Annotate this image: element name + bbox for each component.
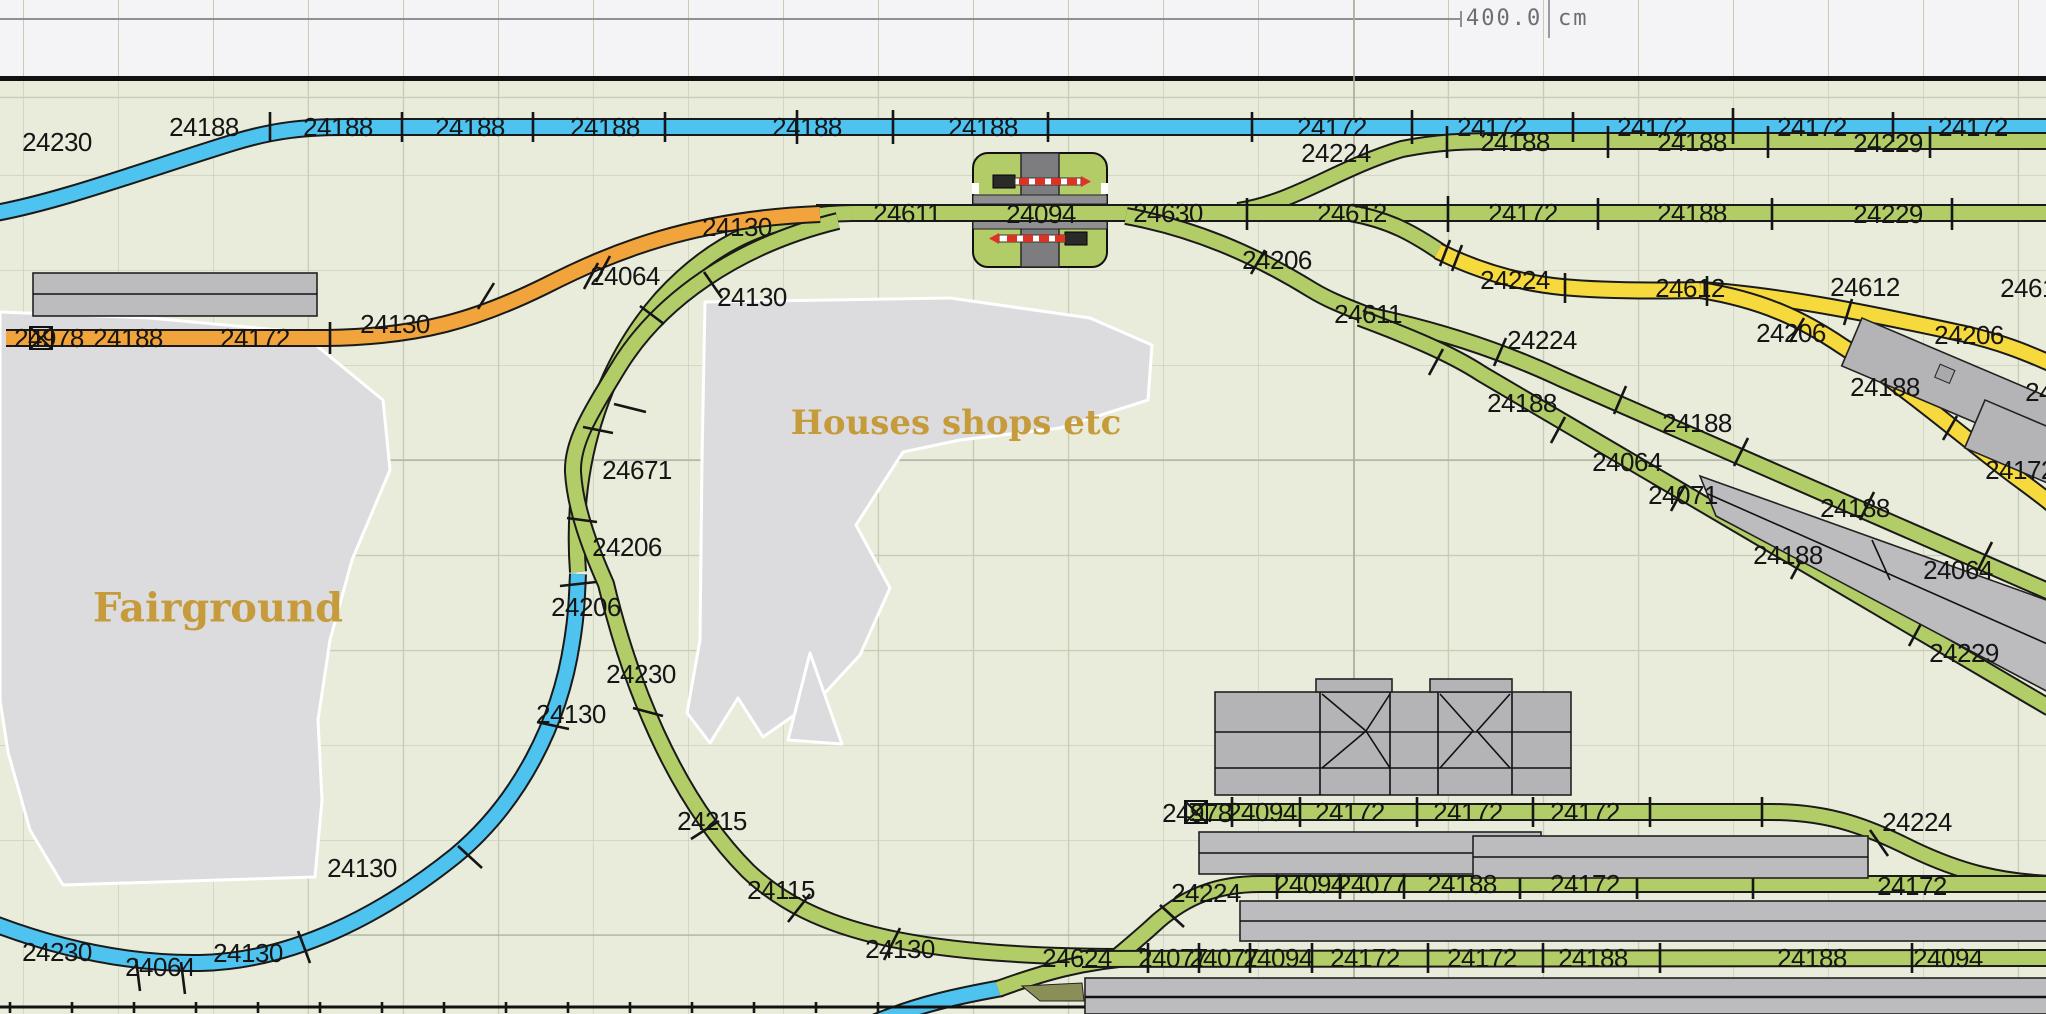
track-part-label: 24077 [1337,871,1407,897]
area-label-fairground: Fairground [93,585,343,632]
track-part-label: 24188 [1850,374,1920,400]
track-plan-drawing [0,0,2046,1014]
track-part-label: 24130 [865,936,935,962]
track-part-label: 24130 [717,284,787,310]
track-part-label: 24094 [1913,945,1983,971]
track-part-label: 24130 [702,214,772,240]
track-part-label: 24064 [1923,557,1993,583]
track-part-label: 24230 [22,129,92,155]
track-part-label: 24094 [1006,201,1076,227]
track-part-label: 24612 [1655,275,1725,301]
track-part-label: 24624 [1042,945,1112,971]
track-part-label: 24206 [1756,320,1826,346]
track-part-label: 24130 [536,701,606,727]
track-part-label: 24671 [602,457,672,483]
track-part-label: 24188 [1657,200,1727,226]
track-part-label: 24188 [1427,871,1497,897]
track-part-label: 24172 [1330,945,1400,971]
track-part-label: 24188 [1753,542,1823,568]
track-part-label: 24094 [1275,871,1345,897]
track-part-label: 24188 [772,114,842,140]
track-part-label: 24188 [1657,129,1727,155]
track-part-label: 24611 [873,200,941,226]
track-part-label: 24188 [303,114,373,140]
track-part-label: 24188 [1480,129,1550,155]
track-part-label: 24130 [213,940,283,966]
track-part-label: 24188 [1487,390,1557,416]
track-part-label: 24206 [1242,247,1312,273]
track-part-label: 24224 [1882,809,1952,835]
track-part-label: 24064 [125,954,195,980]
track-plan-app: 400.0 cm [0,0,2046,1014]
track-part-label: 24230 [606,661,676,687]
track-part-label: 24229 [1853,201,1923,227]
track-part-label: 24172 [1550,799,1620,825]
track-part-label: 24172 [1297,114,1367,140]
track-part-label: 24188 [435,114,505,140]
track-part-label: 24224 [1171,880,1241,906]
track-part-label: 24206 [1934,322,2004,348]
track-part-label: 24064 [590,263,660,289]
track-part-label: 24611 [1334,301,1402,327]
track-part-label: 24612 [2000,275,2046,301]
track-part-label: 24978 [1162,800,1232,826]
trackside-structure[interactable] [1022,983,1084,1001]
track-part-label: 24206 [592,534,662,560]
track-part-label: 24172 [1938,114,2008,140]
track-part-label: 24229 [1929,640,1999,666]
barrier-post-icon [1065,232,1087,245]
track-part-label: 24115 [747,877,815,903]
track-part-label: 24229 [1853,130,1923,156]
track-part-label: 24094 [1227,799,1297,825]
station-dormer [1316,679,1392,692]
track-part-label: 24172 [220,325,290,351]
platform-station-2[interactable] [1473,836,1868,878]
track-part-label: 24188 [1662,410,1732,436]
track-part-label: 24172 [1315,799,1385,825]
track-part-label: 24188 [1820,495,1890,521]
platform-station-4[interactable] [1085,978,2046,1014]
track-part-label: 24172 [1433,799,1503,825]
track-part-label: 24188 [948,114,1018,140]
track-part-label: 24612 [1830,274,1900,300]
track-part-label: 24071 [1648,482,1718,508]
barrier-post-icon [993,175,1015,188]
track-part-label: 24224 [1301,140,1371,166]
area-label-houses: Houses shops etc [791,403,1122,443]
track-part-label: 24172 [1550,871,1620,897]
platform-upper-left[interactable] [33,273,317,316]
station-dormer [1430,679,1512,692]
track-part-label: 24188 [169,114,239,140]
track-part-label: 24230 [22,939,92,965]
track-part-label: 24188 [1558,945,1628,971]
track-part-label: 24064 [1592,449,1662,475]
track-part-label: 24130 [327,855,397,881]
track-part-label: 24188 [2025,379,2046,405]
track-part-label: 24206 [551,594,621,620]
track-part-label: 24612 [1317,200,1387,226]
track-part-label: 24172 [1985,457,2046,483]
track-part-label: 24224 [1507,327,1577,353]
track-part-label: 24172 [1488,200,1558,226]
track-part-label: 24188 [1777,945,1847,971]
platform-station-3[interactable] [1240,901,2046,941]
track-part-label: 24224 [1480,267,1550,293]
track-part-label: 24172 [1447,945,1517,971]
track-part-label: 24130 [360,311,430,337]
track-part-label: 24978 [14,325,84,351]
track-part-label: 24172 [1777,114,1847,140]
track-part-label: 24215 [677,808,747,834]
track-part-label: 24188 [570,114,640,140]
track-part-label: 24172 [1877,873,1947,899]
track-part-label: 24094 [1243,945,1313,971]
area-houses[interactable] [687,298,1152,743]
track-part-label: 24630 [1133,200,1203,226]
track-part-label: 24188 [93,325,163,351]
station-building[interactable] [1215,679,1571,795]
